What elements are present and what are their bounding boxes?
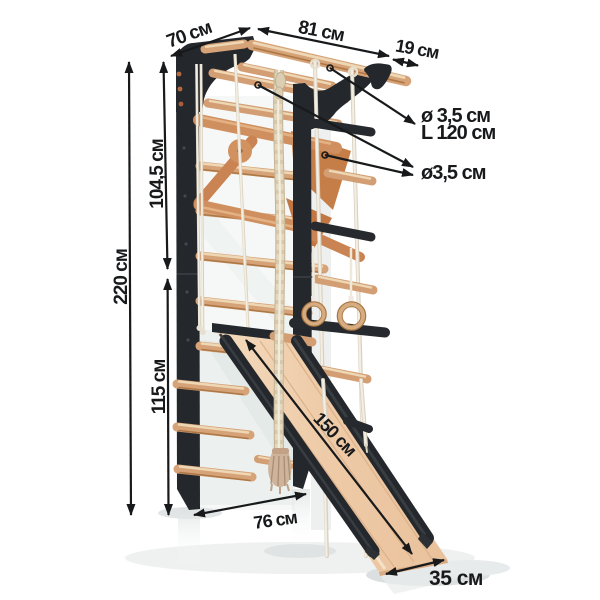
svg-text:35 см: 35 см <box>429 567 483 590</box>
svg-text:104,5 см: 104,5 см <box>147 139 168 208</box>
svg-text:220 см: 220 см <box>111 249 132 305</box>
svg-text:L 120 см: L 120 см <box>421 122 495 144</box>
svg-text:115 см: 115 см <box>149 360 170 415</box>
svg-text:ø3,5 см: ø3,5 см <box>421 162 486 184</box>
